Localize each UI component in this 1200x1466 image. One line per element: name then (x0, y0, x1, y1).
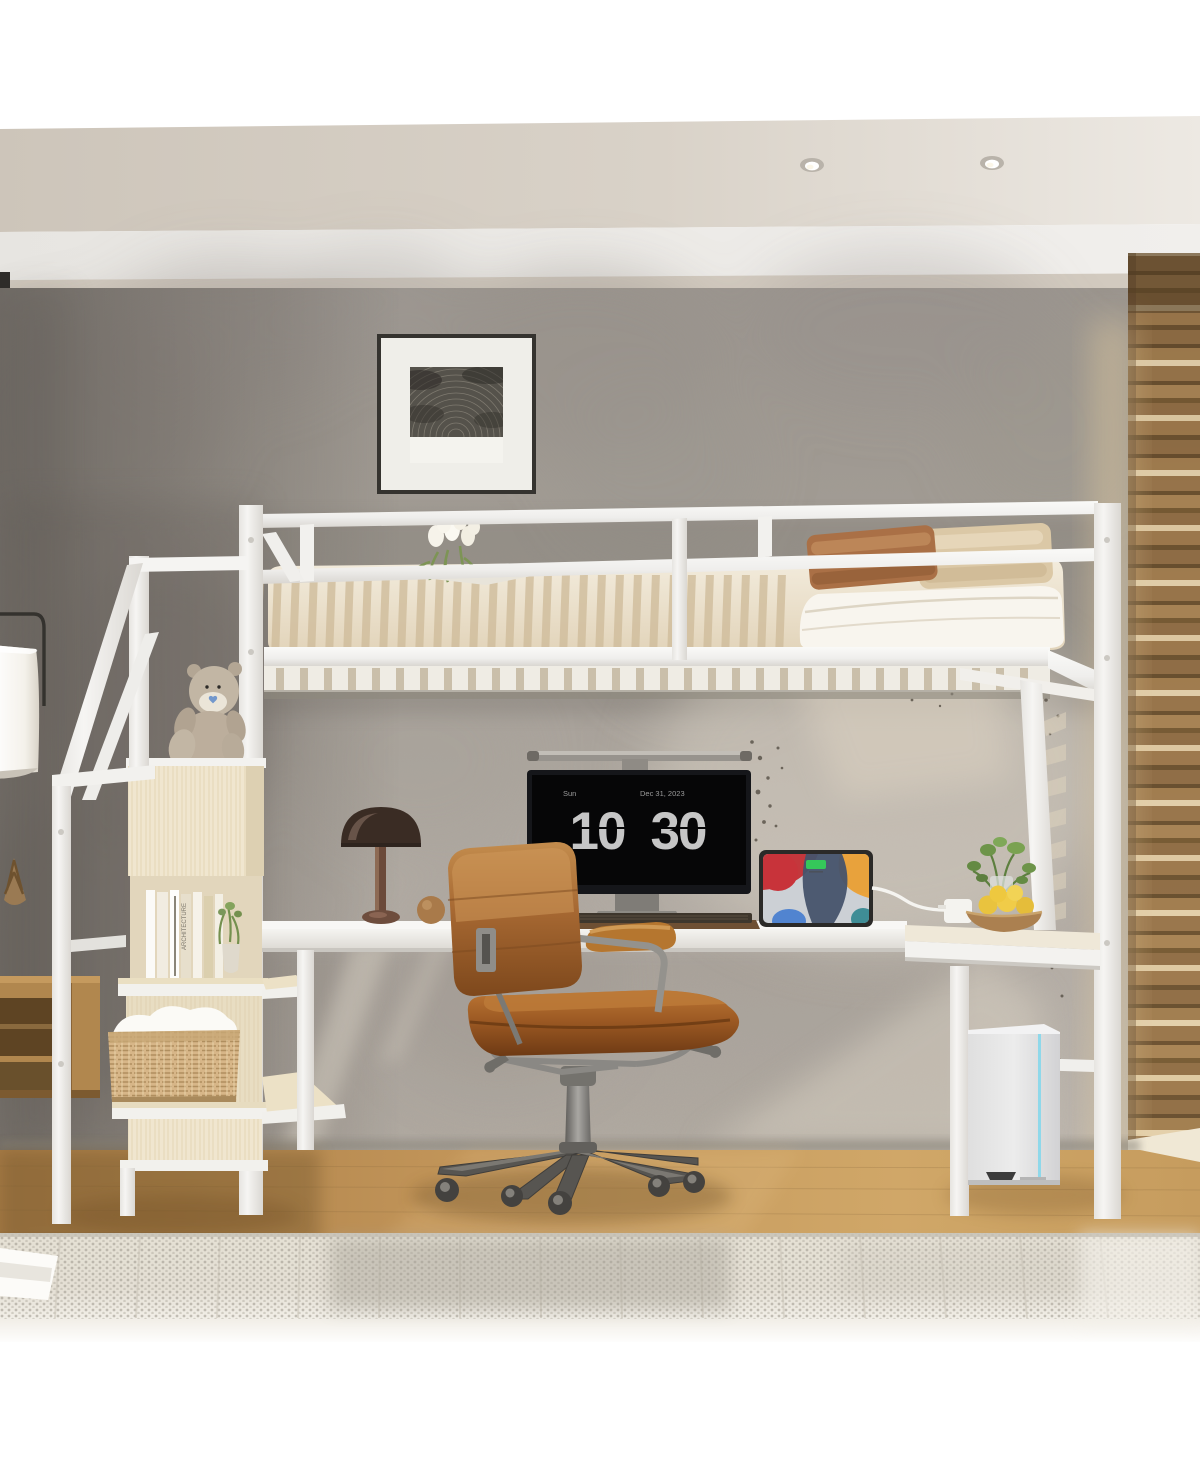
svg-text:30: 30 (651, 802, 706, 861)
svg-text:Sun: Sun (563, 789, 576, 798)
svg-text:10: 10 (570, 802, 625, 861)
svg-text:Dec 31, 2023: Dec 31, 2023 (640, 789, 685, 798)
svg-text:ARCHITECTURE: ARCHITECTURE (182, 903, 188, 950)
